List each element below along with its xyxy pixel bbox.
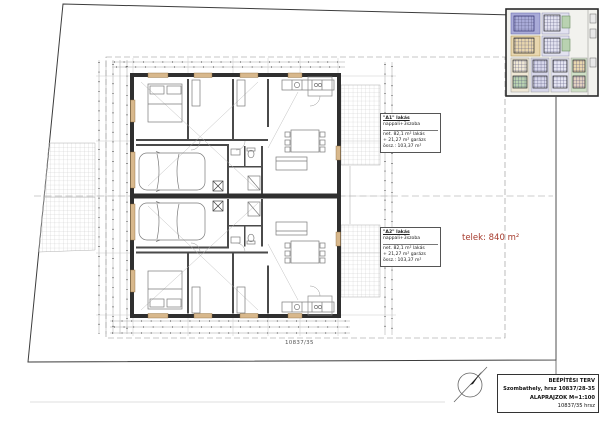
unit-a2-subtitle: nappali+3szoba — [383, 236, 438, 242]
title-block-sheet: ALAPRAJZOK M=1:100 — [501, 394, 595, 402]
unit-a1-area-total: össz.: 103,37 m² — [383, 144, 438, 150]
unit-a1-label-box: "A1" lakás nappali+3szoba net. 82,1 m² l… — [380, 113, 441, 153]
plot-area-label: telek: 840 m² — [462, 233, 519, 243]
divider — [383, 244, 438, 245]
site-plan-drawing — [0, 0, 600, 423]
unit-a1-subtitle: nappali+3szoba — [383, 122, 438, 128]
parcel-number-label: 10837/35 — [285, 340, 314, 346]
north-compass-icon — [454, 367, 487, 402]
divider — [383, 130, 438, 131]
terrace-a2-hatch — [341, 225, 380, 297]
title-block-parcel: 10837/35 hrsz — [501, 402, 595, 410]
site-overview-inset — [506, 9, 598, 96]
title-block-location: Szombathely, hrsz 10837/28-35 — [501, 385, 595, 393]
building-plan — [131, 73, 341, 318]
unit-a2-area-total: össz.: 103,37 m² — [383, 258, 438, 264]
drawing-sheet: "A1" lakás nappali+3szoba net. 82,1 m² l… — [0, 0, 600, 423]
title-block-project-type: BEÉPÍTÉSI TERV — [501, 377, 595, 385]
title-block: BEÉPÍTÉSI TERV Szombathely, hrsz 10837/2… — [497, 374, 599, 413]
terrace-a1-hatch — [341, 85, 380, 165]
unit-a2-label-box: "A2" lakás nappali+3szoba net. 82,1 m² l… — [380, 227, 441, 267]
driveway-hatch — [39, 143, 95, 252]
